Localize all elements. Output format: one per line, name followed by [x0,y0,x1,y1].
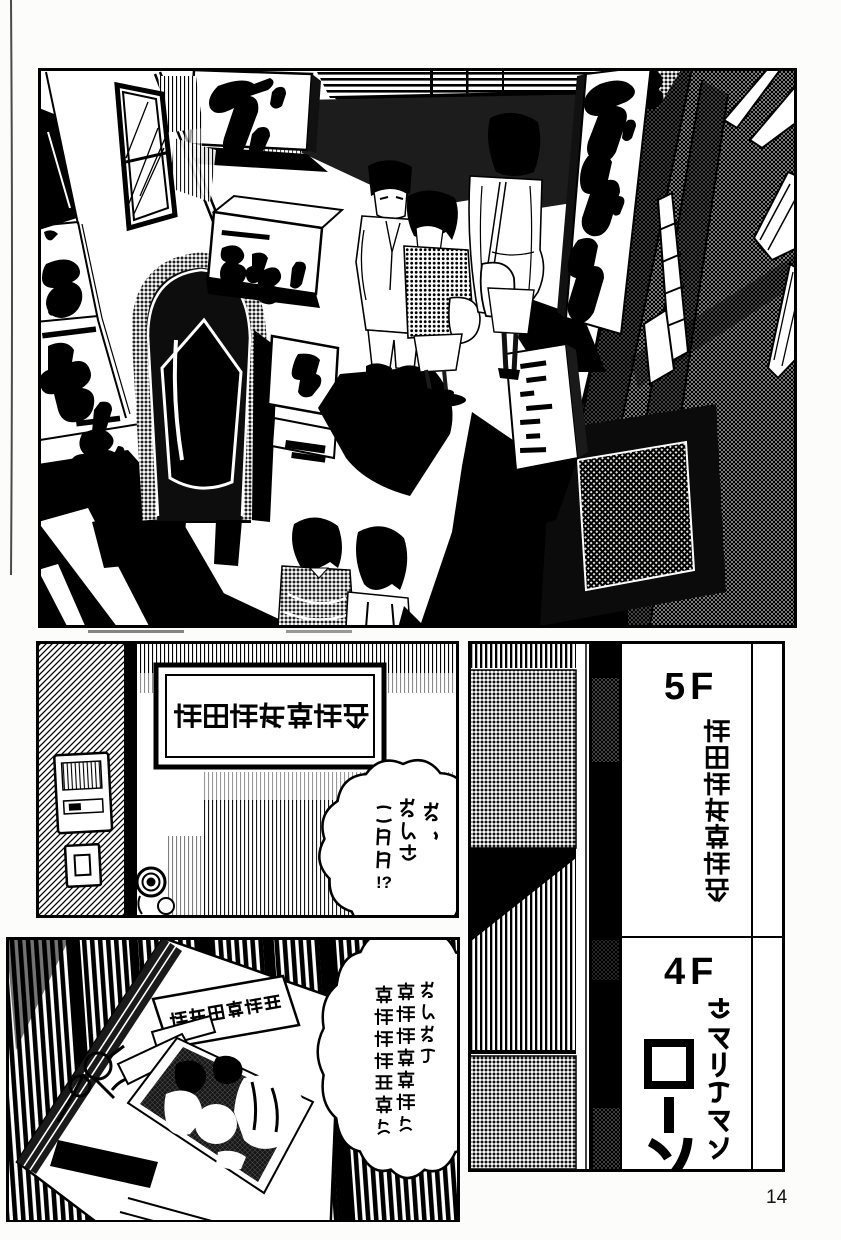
svg-text:4F: 4F [664,951,718,993]
svg-text:5F: 5F [664,666,718,708]
svg-text:!?: !? [376,873,392,892]
svg-text:14: 14 [766,1187,788,1208]
